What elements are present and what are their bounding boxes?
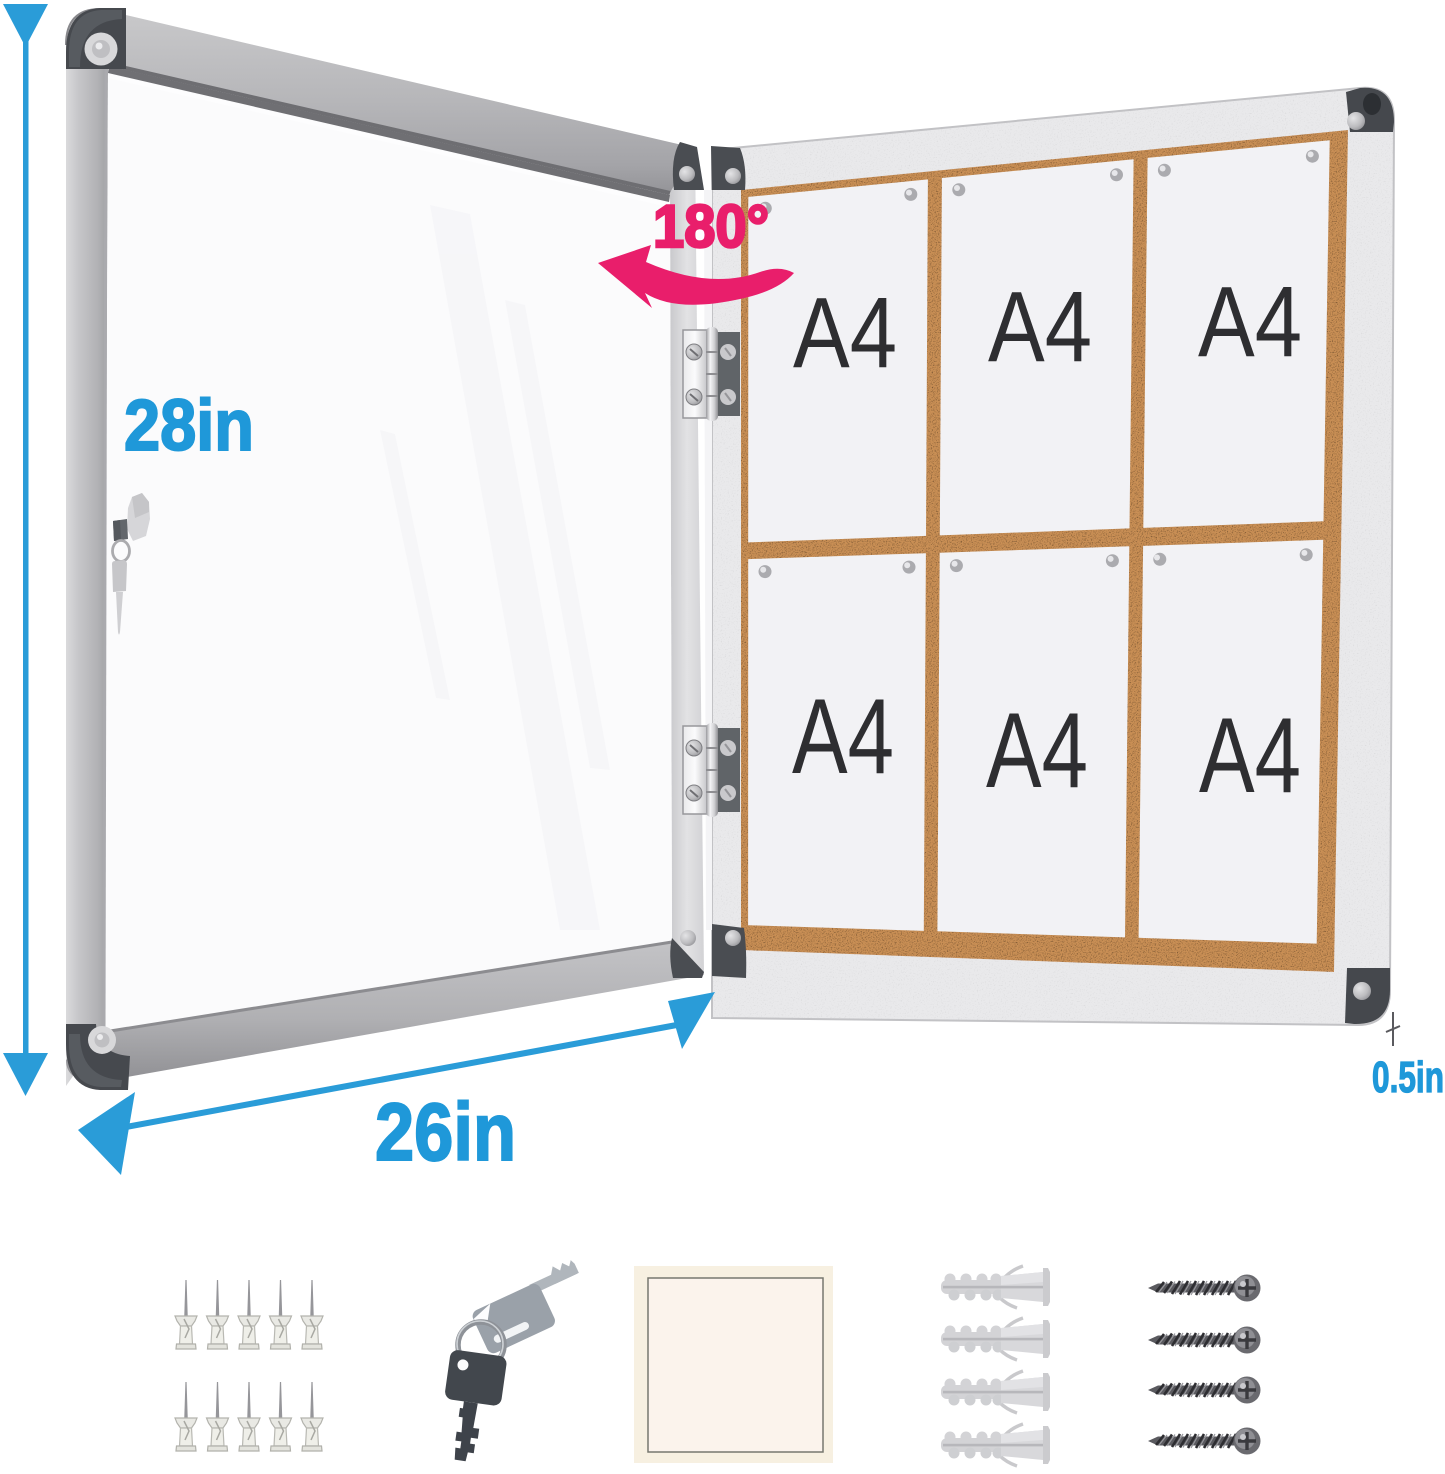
svg-text:A4: A4	[793, 277, 897, 389]
svg-text:A4: A4	[986, 690, 1088, 810]
svg-text:A4: A4	[988, 271, 1092, 383]
svg-text:0.5in: 0.5in	[1372, 1053, 1444, 1102]
svg-text:26in: 26in	[375, 1087, 516, 1178]
svg-text:A4: A4	[1198, 266, 1302, 378]
svg-text:180°: 180°	[653, 193, 769, 260]
svg-text:28in: 28in	[124, 386, 254, 466]
svg-text:A4: A4	[1199, 695, 1301, 815]
svg-text:A4: A4	[792, 676, 894, 796]
